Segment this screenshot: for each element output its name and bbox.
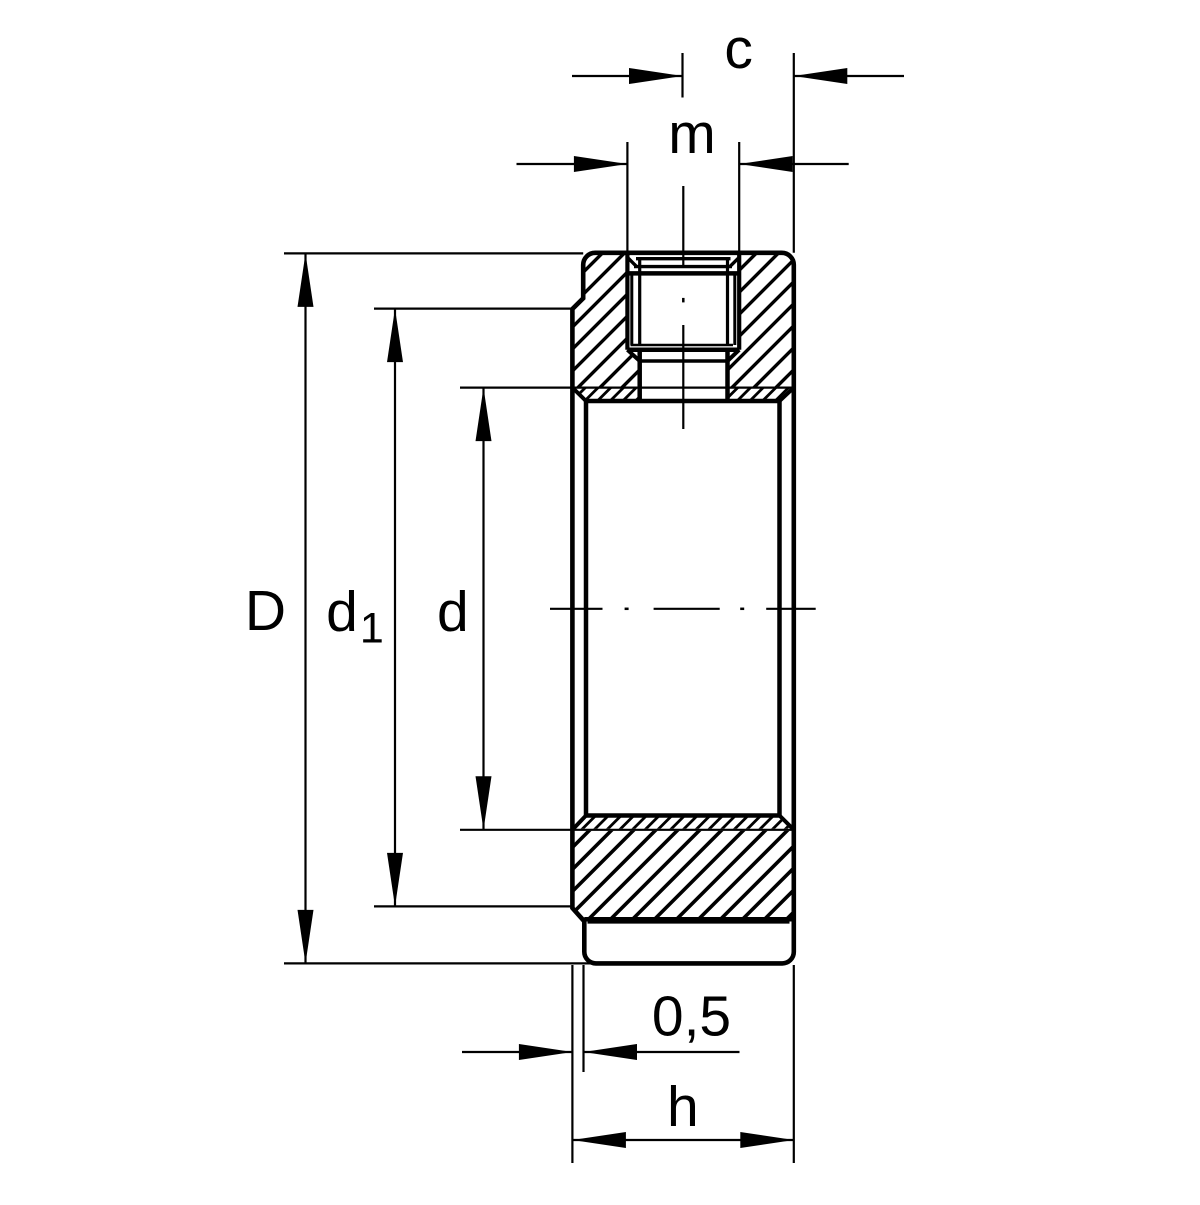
svg-text:d: d — [326, 580, 358, 644]
svg-text:1: 1 — [360, 604, 384, 652]
svg-text:0,5: 0,5 — [652, 984, 731, 1048]
svg-text:d: d — [437, 580, 469, 644]
svg-text:c: c — [724, 17, 753, 81]
svg-text:D: D — [245, 579, 286, 643]
svg-text:m: m — [668, 102, 715, 166]
svg-text:h: h — [667, 1075, 699, 1139]
